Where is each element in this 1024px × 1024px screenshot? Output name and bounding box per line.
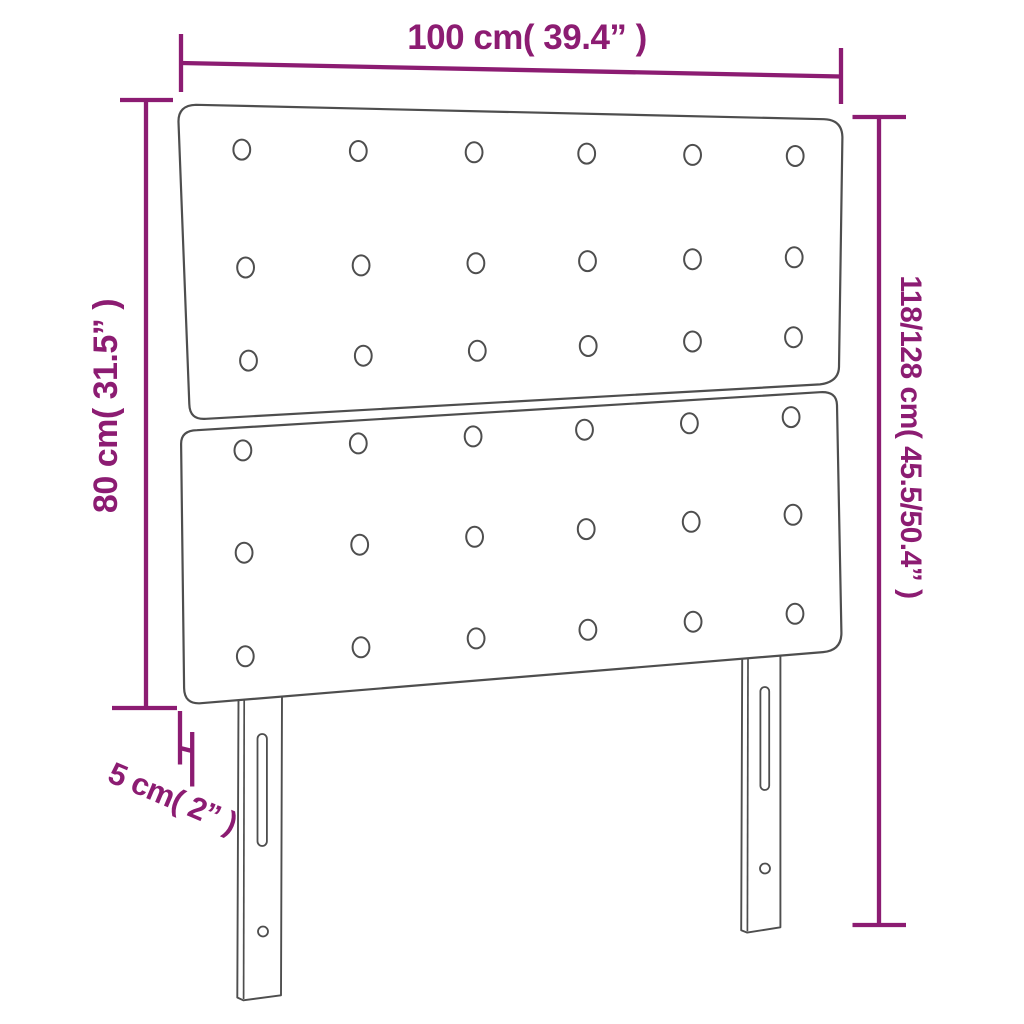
left-leg	[237, 696, 282, 1000]
panel-height-dimension-label: 80 cm( 31.5” )	[87, 299, 125, 513]
tufting-button	[353, 637, 370, 657]
lower-panel	[181, 392, 841, 703]
tufting-button	[685, 612, 702, 632]
diagram-canvas: 100 cm( 39.4” ) 80 cm( 31.5” ) 118/128 c…	[0, 0, 1024, 1024]
depth-dimension-line	[180, 748, 192, 751]
right-leg	[741, 655, 780, 933]
tufting-button	[787, 604, 804, 624]
tufting-button	[466, 527, 483, 547]
leg-slot	[258, 734, 267, 846]
upper-panel	[178, 105, 842, 419]
tufting-button	[468, 253, 485, 273]
width-dimension-line	[181, 63, 841, 77]
tufting-button	[684, 249, 701, 269]
tufting-button	[580, 620, 597, 640]
tufting-button	[469, 341, 486, 361]
right-leg-side-edge	[747, 659, 748, 931]
tufting-button	[684, 332, 701, 352]
lower-panel-outline	[181, 392, 841, 703]
upper-panel-outline	[178, 105, 842, 419]
depth-dimension-label: 5 cm( 2” )	[103, 755, 242, 840]
dimension-width: 100 cm( 39.4” )	[181, 18, 841, 104]
tufting-button	[468, 628, 485, 648]
tufting-button	[465, 426, 482, 446]
tufting-button	[785, 327, 802, 347]
tufting-button	[786, 247, 803, 267]
tufting-button	[353, 255, 370, 275]
tufting-button	[684, 145, 701, 165]
headboard-dimension-diagram: 100 cm( 39.4” ) 80 cm( 31.5” ) 118/128 c…	[0, 0, 1024, 1024]
tufting-button	[466, 142, 483, 162]
tufting-button	[233, 140, 250, 160]
furniture-layer	[178, 105, 842, 1001]
tufting-button	[580, 336, 597, 356]
tufting-button	[350, 433, 367, 453]
tufting-button	[351, 535, 368, 555]
leg-screw-hole	[760, 864, 770, 874]
left-leg-side-edge	[244, 699, 245, 999]
tufting-button	[237, 646, 254, 666]
dimension-panel-height: 80 cm( 31.5” )	[87, 100, 177, 708]
width-dimension-label: 100 cm( 39.4” )	[407, 18, 647, 57]
tufting-button	[683, 512, 700, 532]
tufting-button	[350, 141, 367, 161]
tufting-button	[785, 505, 802, 525]
leg-slot	[760, 687, 769, 790]
tufting-button	[787, 146, 804, 166]
tufting-button	[355, 346, 372, 366]
tufting-button	[783, 407, 800, 427]
tufting-button	[576, 420, 593, 440]
tufting-button	[235, 440, 252, 460]
dimension-depth: 5 cm( 2” )	[103, 711, 242, 841]
total-height-dimension-label: 118/128 cm( 45.5/50.4” )	[894, 275, 927, 598]
tufting-button	[579, 251, 596, 271]
tufting-button	[578, 519, 595, 539]
dimension-total-height: 118/128 cm( 45.5/50.4” )	[853, 117, 928, 925]
tufting-button	[681, 413, 698, 433]
tufting-button	[237, 258, 254, 278]
tufting-button	[578, 144, 595, 164]
tufting-button	[240, 351, 257, 371]
leg-screw-hole	[258, 927, 268, 937]
tufting-button	[236, 543, 253, 563]
